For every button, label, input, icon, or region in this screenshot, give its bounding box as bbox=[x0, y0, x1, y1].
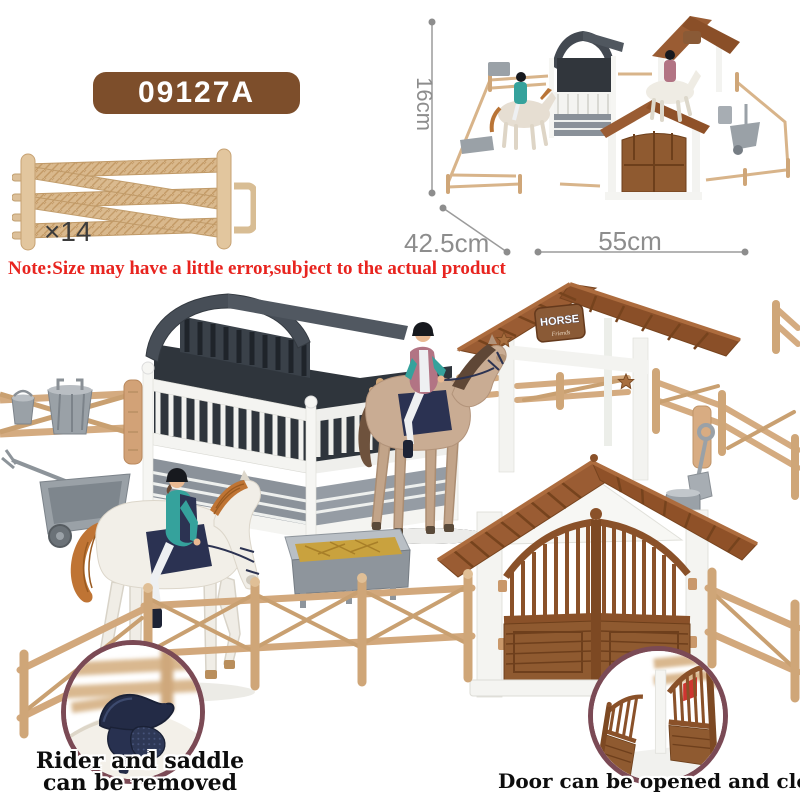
saddle-caption-line1: Rider and saddle bbox=[28, 750, 252, 772]
mini-gate bbox=[600, 100, 710, 200]
width-dimension-label: 55cm bbox=[570, 226, 690, 257]
saddle-caption: Rider and saddle can be removed bbox=[28, 750, 252, 794]
height-dimension-label: 16cm bbox=[412, 74, 436, 134]
product-listing-image: 09127A ×14 Note:Size may have a little e bbox=[0, 0, 800, 800]
shelter-sign: HORSE Friends bbox=[534, 304, 585, 343]
product-code: 09127A bbox=[138, 76, 255, 110]
mini-horse-right bbox=[646, 50, 701, 120]
mini-horse-left bbox=[492, 72, 556, 148]
hanging-bucket bbox=[12, 391, 34, 424]
hanging-feed-basket bbox=[48, 380, 92, 434]
fence-bracket bbox=[234, 186, 254, 230]
open-gates-image bbox=[593, 651, 723, 781]
saddle-caption-line2: can be removed bbox=[28, 772, 252, 794]
product-code-badge: 09127A bbox=[93, 72, 300, 114]
horse-right bbox=[358, 322, 506, 544]
mini-stable bbox=[549, 31, 624, 138]
dimension-overview: 16cm 42.5cm 55cm bbox=[400, 0, 800, 262]
door-caption: Door can be opened and closed bbox=[498, 769, 800, 793]
fence-count-label: ×14 bbox=[44, 216, 92, 248]
left-rail-fence bbox=[0, 380, 142, 464]
depth-dimension-label: 42.5cm bbox=[404, 228, 489, 259]
wall-mount-post-left bbox=[124, 380, 142, 464]
right-accessories bbox=[666, 406, 713, 514]
dimension-dots bbox=[429, 19, 749, 256]
playset-overview-photo bbox=[400, 0, 800, 262]
gate-detail-inset bbox=[588, 646, 728, 786]
